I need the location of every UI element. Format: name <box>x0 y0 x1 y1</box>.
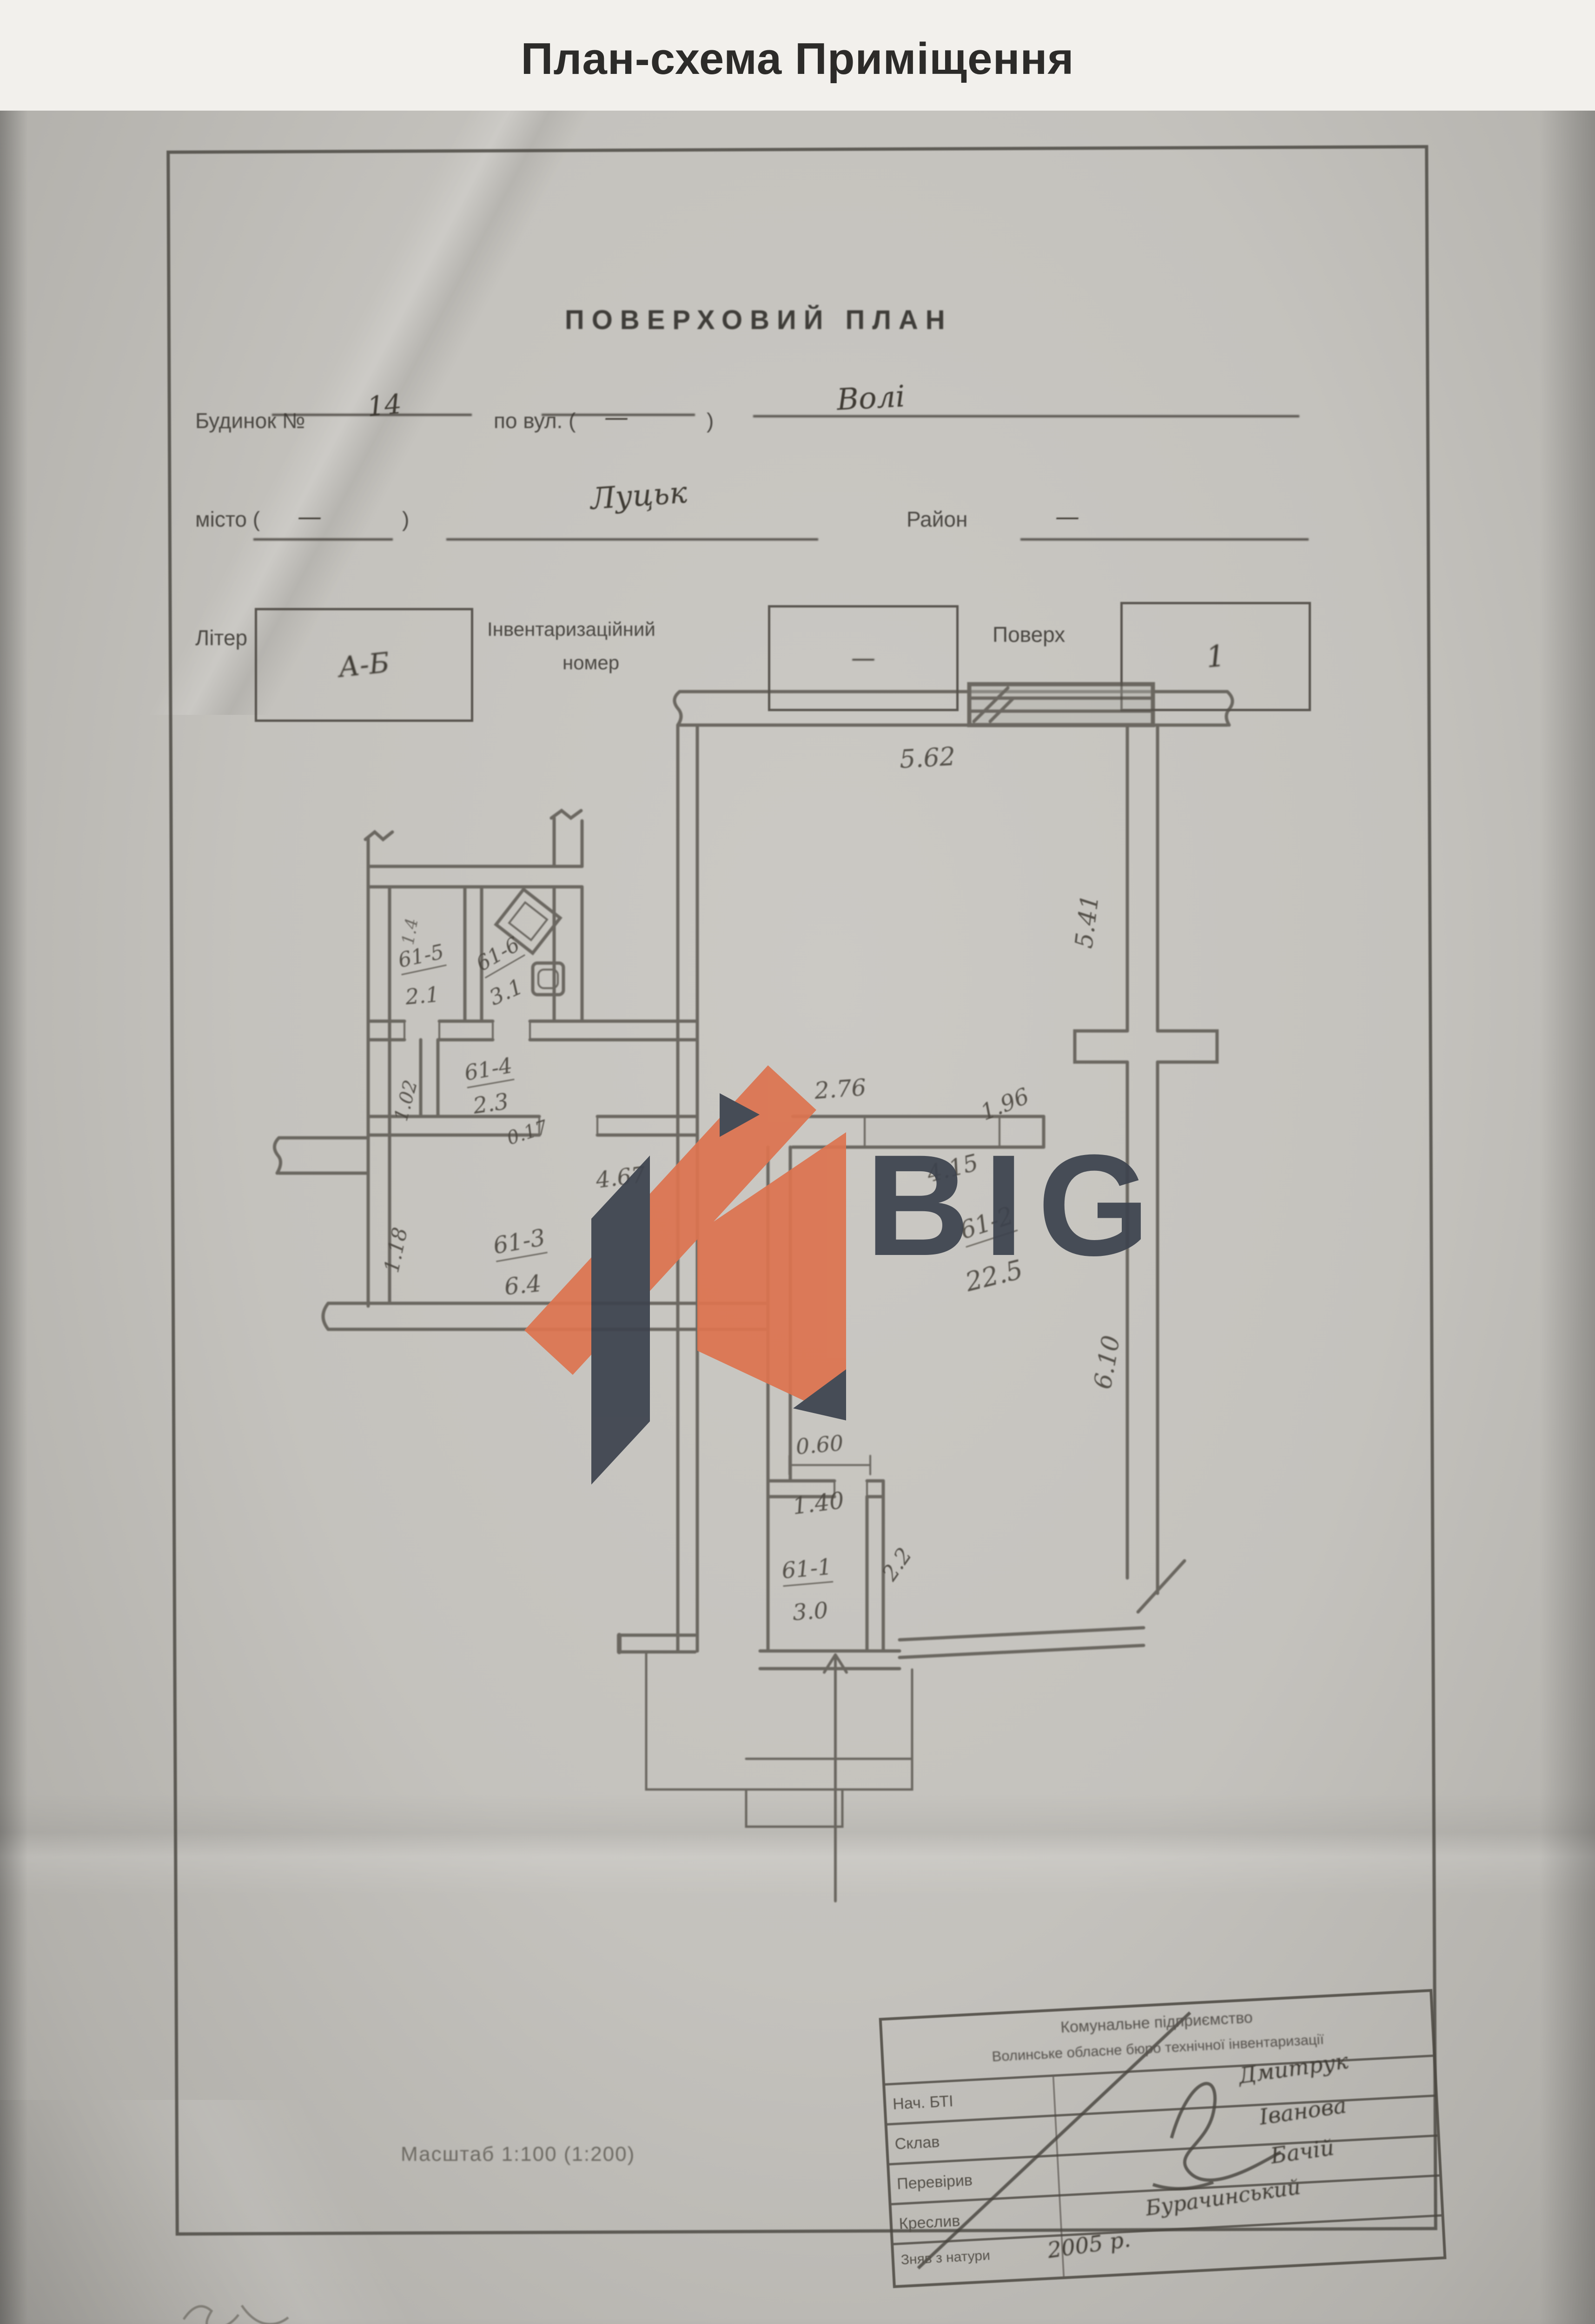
watermark-brand-text: BIG <box>866 1133 1164 1277</box>
stamp-date: 2005 р. <box>1046 2226 1132 2263</box>
stamp-signature-2: Іванова <box>1257 2093 1348 2130</box>
logo-bar <box>591 1155 650 1485</box>
stamp-row-label-3: Перевірив <box>896 2172 973 2193</box>
stamp-divider <box>893 2214 1442 2245</box>
stamp-divider <box>887 2094 1435 2126</box>
big-logo <box>0 0 1595 2324</box>
stamp-row-label-2: Склав <box>894 2133 940 2153</box>
stamp-signature-1: Дмитрук <box>1237 2048 1350 2089</box>
stamp-signature-3: Бачій <box>1269 2135 1336 2169</box>
document-photo-page: План-схема Приміщення ПОВЕРХОВИЙ ПЛАН Бу… <box>0 0 1595 2324</box>
stamp-signature-4: Бурачинський <box>1144 2174 1302 2220</box>
stamp-row-label-1: Нач. БТІ <box>892 2092 953 2113</box>
scale-note: Масштаб 1:100 (1:200) <box>401 2143 635 2166</box>
stamp-row-label-5: Зняв з натури <box>900 2248 991 2268</box>
stamp-table: Комунальне підприємство Волинське обласн… <box>879 1989 1447 2288</box>
stamp-row-label-4: Креслив <box>899 2212 960 2233</box>
stamp-divider <box>889 2134 1437 2166</box>
